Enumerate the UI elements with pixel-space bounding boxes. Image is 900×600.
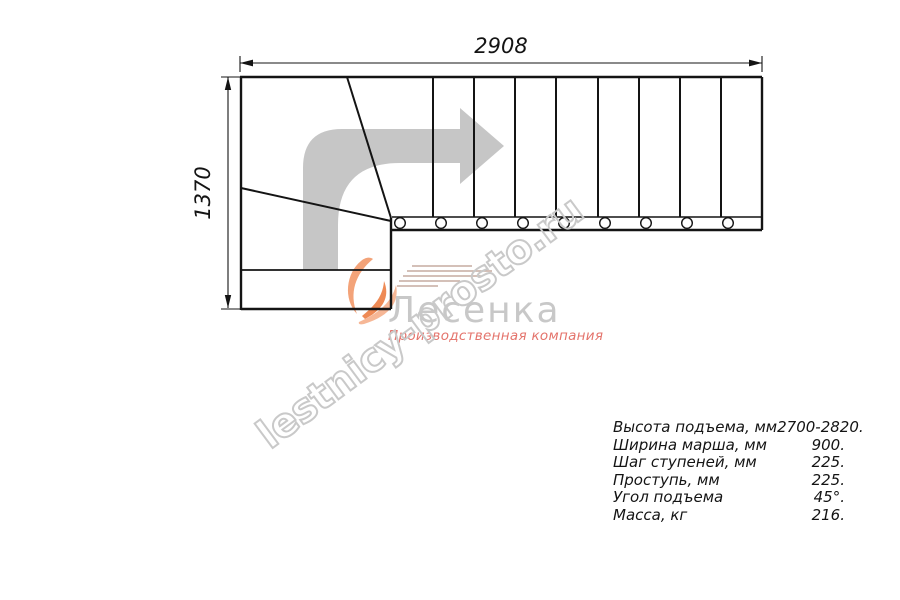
spec-value: 216.	[812, 507, 845, 525]
dim-left-value: 1370	[191, 166, 215, 219]
dim-left-arrow-bottom	[225, 295, 231, 308]
stair-drawing-page: Лесенка Производственная компания	[0, 0, 900, 600]
dim-top-arrow-left	[240, 60, 253, 67]
logo-swirl-icon	[348, 258, 373, 314]
spec-row: Шаг ступеней, мм 225.	[613, 454, 845, 472]
spec-label: Высота подъема, мм	[613, 419, 777, 437]
spec-row: Угол подъема 45°.	[613, 489, 845, 507]
spec-row: Ширина марша, мм 900.	[613, 437, 845, 455]
spec-label: Шаг ступеней, мм	[613, 454, 757, 472]
dim-top-arrow-right	[749, 60, 762, 67]
spec-row: Масса, кг 216.	[613, 507, 845, 525]
spec-value: 225.	[812, 472, 845, 490]
spec-label: Угол подъема	[613, 489, 723, 507]
dim-top-value: 2908	[474, 34, 527, 58]
spec-label: Проступь, мм	[613, 472, 720, 490]
spec-value: 2700-2820.	[777, 419, 864, 437]
spec-row: Проступь, мм 225.	[613, 472, 845, 490]
dimension-left: 1370	[191, 77, 241, 309]
spec-label: Масса, кг	[613, 507, 687, 525]
spec-value: 900.	[812, 437, 845, 455]
spec-row: Высота подъема, мм 2700-2820.	[613, 419, 845, 437]
spec-value: 225.	[812, 454, 845, 472]
dim-left-arrow-top	[225, 77, 231, 90]
spec-value: 45°.	[814, 489, 845, 507]
dimension-top: 2908	[240, 34, 762, 72]
specs-table: Высота подъема, мм 2700-2820. Ширина мар…	[613, 419, 845, 524]
spec-label: Ширина марша, мм	[613, 437, 767, 455]
